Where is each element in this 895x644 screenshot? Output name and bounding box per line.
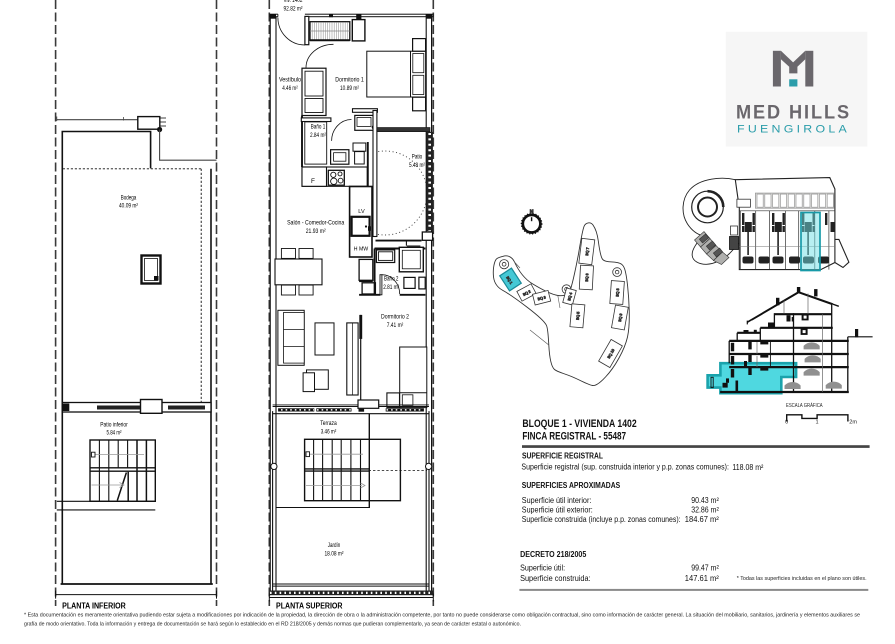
svg-text:Viv. 1402: Viv. 1402	[284, 0, 303, 4]
svg-text:184.67 m²: 184.67 m²	[685, 515, 719, 524]
svg-text:3.46 m²: 3.46 m²	[321, 428, 337, 435]
svg-text:5.84 m²: 5.84 m²	[107, 430, 123, 437]
svg-text:Vestíbulo: Vestíbulo	[279, 77, 301, 84]
svg-text:Superficie útil exterior:: Superficie útil exterior:	[522, 506, 593, 515]
svg-text:5.48 m²: 5.48 m²	[409, 162, 426, 169]
svg-text:147.61 m²: 147.61 m²	[685, 574, 719, 583]
svg-text:118.08 m²: 118.08 m²	[732, 463, 763, 472]
svg-text:0: 0	[785, 420, 788, 426]
svg-text:2.84 m²: 2.84 m²	[310, 132, 327, 139]
svg-text:BQ 6: BQ 6	[585, 273, 589, 281]
svg-text:Patio: Patio	[412, 154, 423, 161]
svg-text:Patio inferior: Patio inferior	[100, 422, 128, 429]
svg-text:Superficie registral (sup. con: Superficie registral (sup. construida in…	[521, 463, 729, 472]
svg-text:MED HILLS: MED HILLS	[736, 102, 851, 123]
svg-text:99.47 m²: 99.47 m²	[691, 564, 719, 573]
svg-text:BQ 5: BQ 5	[576, 312, 581, 321]
svg-text:BLOQUE 1 - VIVIENDA 1402: BLOQUE 1 - VIVIENDA 1402	[522, 418, 636, 430]
svg-text:Dormitorio 1: Dormitorio 1	[335, 77, 364, 84]
svg-text:grafía de modo orientativo. To: grafía de modo orientativo. Toda la info…	[24, 622, 521, 628]
svg-text:90.43 m²: 90.43 m²	[691, 496, 719, 505]
svg-text:Superficie útil interior:: Superficie útil interior:	[522, 496, 592, 505]
svg-text:Superficie construida (incluye: Superficie construida (incluye p.p. zona…	[522, 515, 681, 524]
svg-text:18.08 m²: 18.08 m²	[325, 551, 345, 558]
svg-text:BQ 8: BQ 8	[616, 288, 621, 296]
svg-text:Terraza: Terraza	[320, 420, 337, 427]
svg-text:H MW: H MW	[354, 247, 369, 253]
svg-text:LV: LV	[358, 209, 365, 215]
svg-text:FINCA REGISTRAL - 55487: FINCA REGISTRAL - 55487	[522, 431, 626, 443]
svg-text:FUENGIROLA: FUENGIROLA	[737, 124, 850, 136]
svg-text:Dormitorio 2: Dormitorio 2	[381, 313, 409, 320]
svg-text:Jardín: Jardín	[328, 542, 341, 549]
svg-text:* Todas las superficies inclui: * Todas las superficies incluidas en el …	[737, 576, 867, 582]
svg-text:PLANTA INFERIOR: PLANTA INFERIOR	[62, 601, 126, 611]
svg-text:10.89 m²: 10.89 m²	[340, 85, 360, 92]
svg-text:1: 1	[816, 420, 819, 426]
svg-text:7.41 m²: 7.41 m²	[387, 322, 404, 329]
svg-text:Superficie útil:: Superficie útil:	[520, 564, 565, 573]
svg-text:F: F	[311, 178, 315, 185]
svg-text:ESCALA GRÁFICA: ESCALA GRÁFICA	[786, 402, 823, 409]
svg-text:Baño 1: Baño 1	[311, 124, 326, 131]
svg-text:SUPERFICIE REGISTRAL: SUPERFICIE REGISTRAL	[522, 451, 603, 460]
svg-text:Superficie construida:: Superficie construida:	[520, 574, 591, 583]
svg-text:2.81 m²: 2.81 m²	[383, 284, 400, 291]
svg-text:SUPERFICIES APROXIMADAS: SUPERFICIES APROXIMADAS	[522, 481, 620, 490]
svg-text:* Esta documentación es merame: * Esta documentación es meramente orient…	[24, 613, 860, 619]
svg-text:92.82 m²: 92.82 m²	[284, 6, 304, 13]
svg-text:40.09 m²: 40.09 m²	[119, 203, 139, 210]
svg-text:PLANTA SUPERIOR: PLANTA SUPERIOR	[276, 601, 343, 611]
svg-text:2m: 2m	[849, 420, 857, 426]
svg-text:N: N	[530, 210, 534, 216]
svg-text:32.86 m²: 32.86 m²	[691, 506, 719, 515]
svg-text:Baño 2: Baño 2	[384, 276, 399, 283]
svg-text:Salón - Comedor-Cocina: Salón - Comedor-Cocina	[287, 220, 344, 227]
svg-text:Bodega: Bodega	[121, 195, 137, 202]
svg-text:DECRETO 218/2005: DECRETO 218/2005	[520, 550, 587, 559]
svg-text:4.46 m²: 4.46 m²	[282, 85, 298, 92]
svg-text:21.93 m²: 21.93 m²	[306, 228, 327, 235]
